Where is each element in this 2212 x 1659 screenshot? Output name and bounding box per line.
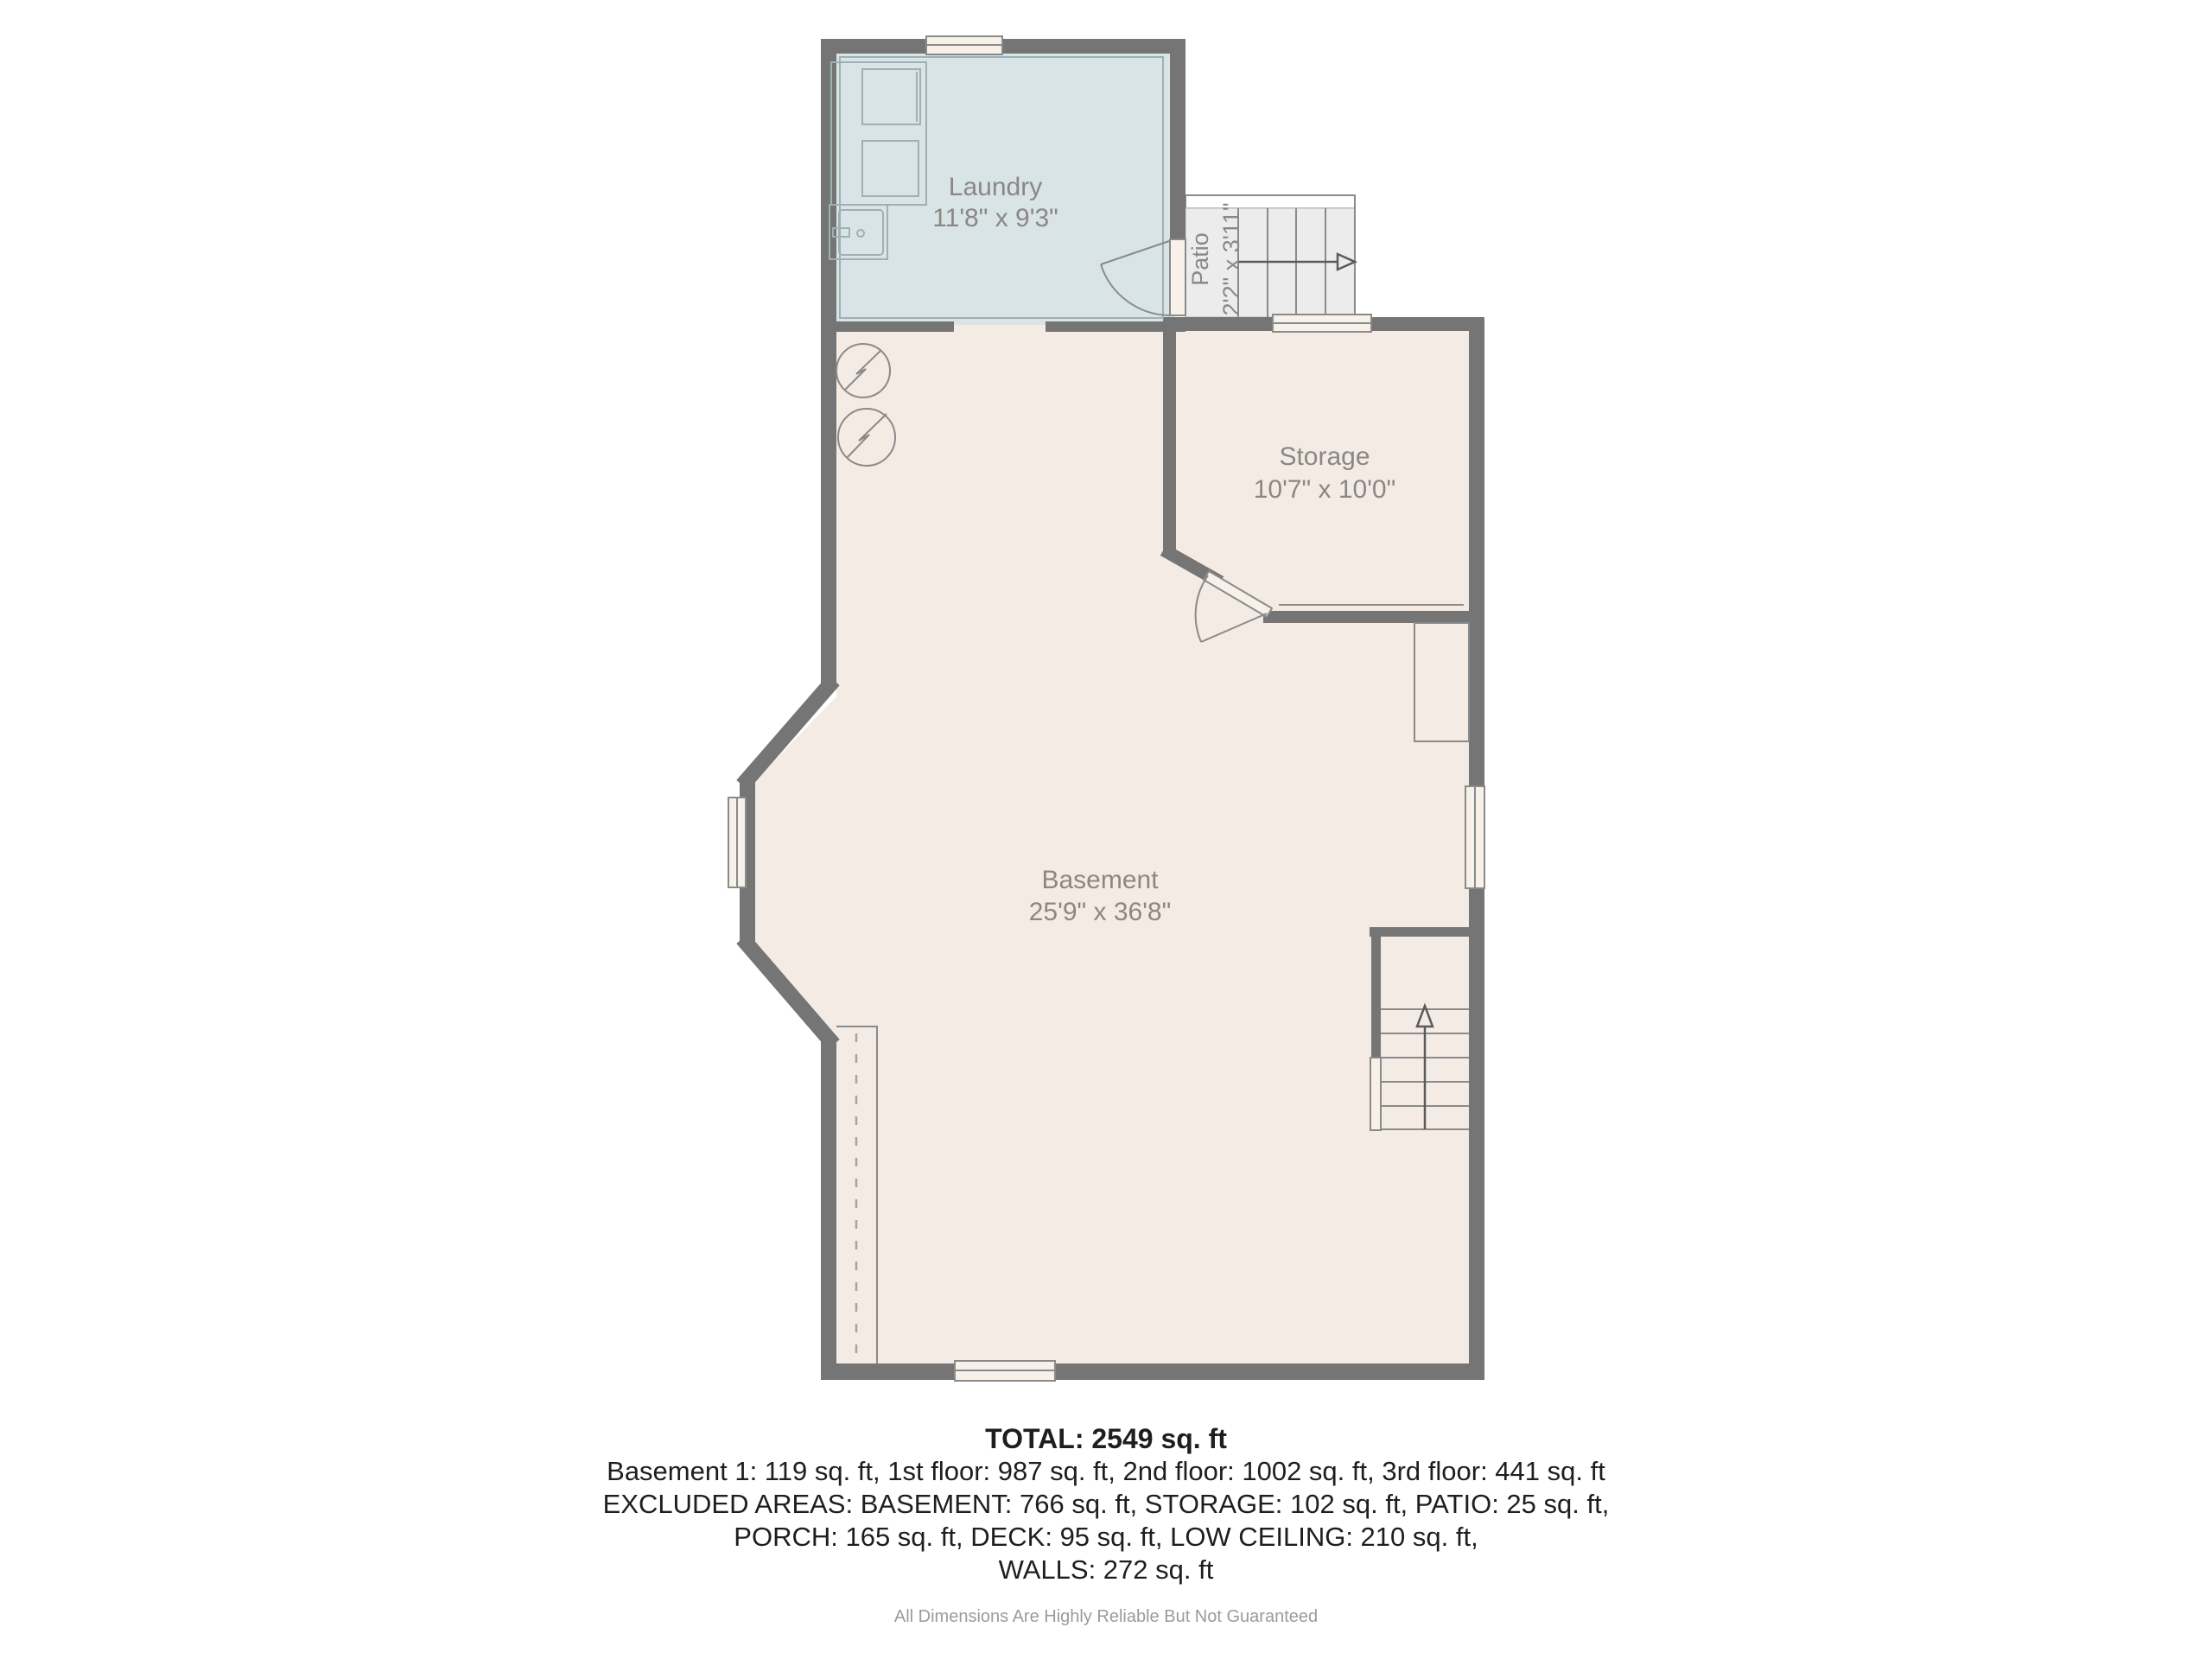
laundry-label: Laundry — [949, 173, 1042, 201]
bay-window — [728, 798, 746, 887]
laundry-dims: 11'8" x 9'3" — [932, 204, 1058, 232]
disclaimer: All Dimensions Are Highly Reliable But N… — [0, 1600, 2212, 1633]
patio-edge — [1185, 195, 1355, 208]
floor-areas: Basement 1: 119 sq. ft, 1st floor: 987 s… — [0, 1455, 2212, 1488]
bottom-window — [955, 1361, 1055, 1381]
area-summary: TOTAL: 2549 sq. ft Basement 1: 119 sq. f… — [0, 1422, 2212, 1633]
storage-label: Storage — [1279, 442, 1370, 471]
stair-railing — [1370, 1058, 1381, 1130]
basement-label: Basement — [1041, 866, 1159, 894]
basement-dims: 25'9" x 36'8" — [1029, 898, 1172, 926]
patio-label: Patio — [1187, 232, 1213, 286]
right-wall-window — [1465, 786, 1484, 888]
excluded-areas-line-2: PORCH: 165 sq. ft, DECK: 95 sq. ft, LOW … — [0, 1521, 2212, 1554]
patio-dims: 2'2" x 3'11" — [1218, 202, 1244, 315]
storage-top-window — [1273, 315, 1371, 332]
total-area: TOTAL: 2549 sq. ft — [0, 1422, 2212, 1455]
storage-dims: 10'7" x 10'0" — [1254, 475, 1396, 504]
floor-plan: Laundry 11'8" x 9'3" Patio 2'2" x 3'11" … — [0, 0, 2212, 1659]
excluded-areas-line-3: WALLS: 272 sq. ft — [0, 1554, 2212, 1586]
excluded-areas-line-1: EXCLUDED AREAS: BASEMENT: 766 sq. ft, ST… — [0, 1488, 2212, 1521]
laundry-top-window — [926, 36, 1002, 54]
